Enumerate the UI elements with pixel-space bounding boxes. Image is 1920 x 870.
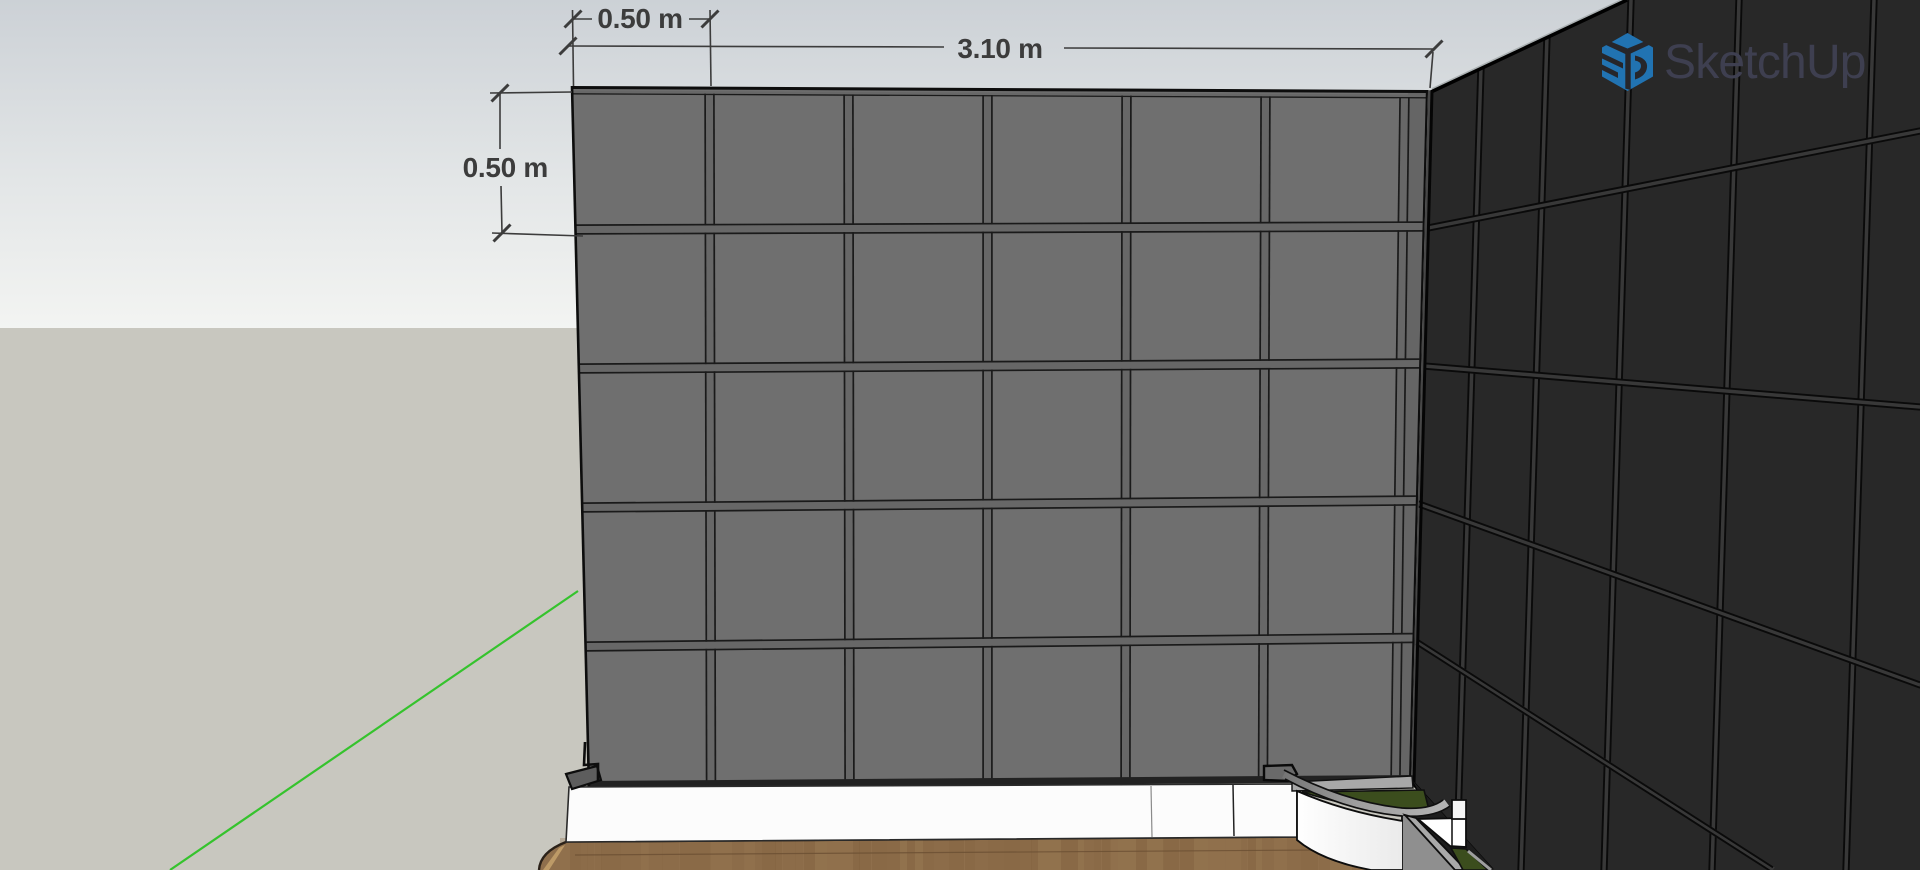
svg-text:0.50 m: 0.50 m (597, 3, 682, 34)
svg-text:3.10 m: 3.10 m (957, 33, 1042, 64)
svg-text:SketchUp: SketchUp (1664, 36, 1866, 89)
svg-text:0.50 m: 0.50 m (463, 152, 548, 183)
